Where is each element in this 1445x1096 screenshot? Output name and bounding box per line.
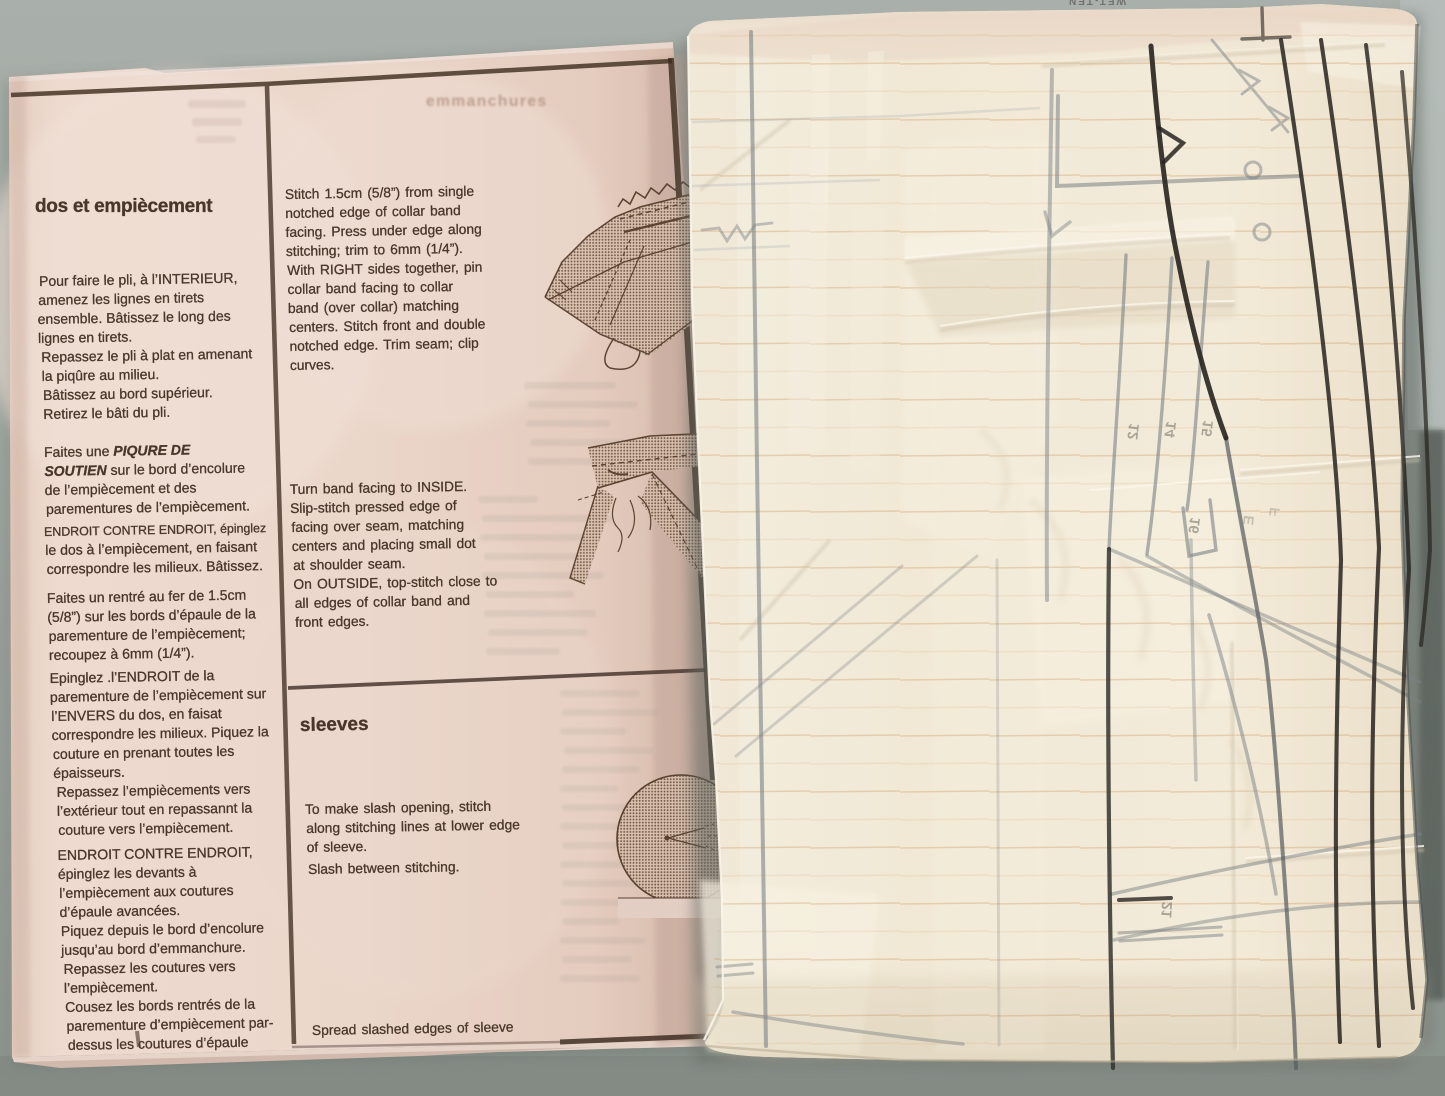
svg-text:of sleeve.: of sleeve. [307, 839, 368, 855]
svg-text:ensemble. Bâtissez le long des: ensemble. Bâtissez le long des [38, 308, 231, 327]
svg-text:amenez les lignes en tirets: amenez les lignes en tirets [38, 289, 204, 308]
svg-text:épinglez les devants à: épinglez les devants à [58, 864, 197, 882]
svg-text:notched edge of collar band: notched edge of collar band [285, 203, 461, 221]
svg-text:Bâtissez au bord supérieur.: Bâtissez au bord supérieur. [43, 384, 213, 403]
svg-text:jusqu’au bord d’emmanchure.: jusqu’au bord d’emmanchure. [60, 939, 246, 958]
svg-text:l’extérieur tout en repassannt: l’extérieur tout en repassannt la [57, 799, 253, 818]
svg-text:Turn band facing to INSIDE.: Turn band facing to INSIDE. [290, 479, 467, 497]
svg-text:curves.: curves. [290, 357, 335, 373]
svg-text:Epinglez .l’ENDROIT de la: Epinglez .l’ENDROIT de la [49, 667, 214, 686]
svg-text:Cousez les bords rentrés de la: Cousez les bords rentrés de la [65, 996, 255, 1015]
svg-text:couture vers l’empiècement.: couture vers l’empiècement. [58, 819, 233, 838]
svg-text:14: 14 [1162, 421, 1180, 439]
svg-text:front edges.: front edges. [295, 614, 369, 630]
svg-text:Slash between stitching.: Slash between stitching. [308, 859, 460, 877]
svg-text:recoupez à 6mm (1/4”).: recoupez à 6mm (1/4”). [49, 644, 195, 663]
svg-text:couture en prenant toutes les: couture en prenant toutes les [53, 743, 235, 762]
svg-text:Retirez le bâti du pli.: Retirez le bâti du pli. [43, 404, 170, 422]
svg-text:Repassez les coutures vers: Repassez les coutures vers [63, 958, 235, 977]
svg-text:l’empiècement.: l’empiècement. [64, 978, 158, 996]
svg-text:la piqûre au milieu.: la piqûre au milieu. [42, 366, 160, 384]
svg-text:facing over seam, matching: facing over seam, matching [291, 517, 464, 535]
svg-text:at shoulder seam.: at shoulder seam. [293, 556, 406, 573]
svg-text:dessus les coutures d’épaule: dessus les coutures d’épaule [68, 1034, 249, 1053]
svg-text:Repassez l’empiècements vers: Repassez l’empiècements vers [56, 781, 250, 800]
svg-text:E: E [1241, 515, 1258, 527]
svg-text:de l’empiècement et des: de l’empiècement et des [45, 479, 197, 498]
svg-text:l’ENVERS du dos, en faisat: l’ENVERS du dos, en faisat [51, 705, 222, 724]
svg-text:stitching; trim to 6mm (1/4”).: stitching; trim to 6mm (1/4”). [286, 241, 463, 259]
svg-text:lignes en tirets.: lignes en tirets. [38, 328, 132, 346]
svg-text:21: 21 [1159, 901, 1176, 918]
svg-text:centers and placing small dot: centers and placing small dot [292, 536, 476, 554]
svg-text:d’épaule avancées.: d’épaule avancées. [59, 902, 180, 920]
svg-text:WET-TEN: WET-TEN [1067, 0, 1126, 6]
svg-text:Faites une PIQURE DE: Faites une PIQURE DE [44, 441, 191, 460]
svg-text:F: F [1267, 507, 1284, 518]
svg-text:dos et empiècement: dos et empiècement [35, 196, 213, 217]
svg-text:15: 15 [1199, 420, 1217, 438]
svg-text:épaisseurs.: épaisseurs. [53, 764, 125, 781]
svg-text:Slip-stitch pressed edge of: Slip-stitch pressed edge of [290, 498, 457, 516]
svg-text:collar band facing to collar: collar band facing to collar [287, 279, 453, 297]
svg-text:sleeves: sleeves [300, 714, 369, 736]
svg-text:16: 16 [1186, 517, 1204, 535]
svg-text:all edges of collar band and: all edges of collar band and [295, 593, 470, 611]
svg-text:12: 12 [1125, 423, 1143, 441]
svg-text:emmanchures: emmanchures [426, 93, 548, 110]
svg-text:band (over collar) matching: band (over collar) matching [288, 298, 459, 316]
svg-text:ENDROIT CONTRE ENDROIT,: ENDROIT CONTRE ENDROIT, [57, 844, 252, 863]
svg-text:l’empiècement aux coutures: l’empiècement aux coutures [59, 882, 234, 901]
